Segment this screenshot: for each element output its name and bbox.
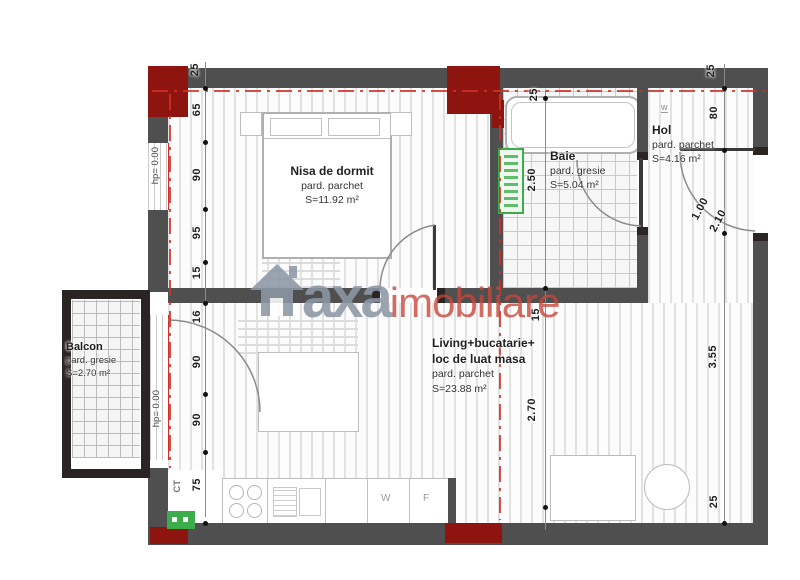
dim-label: 15: [191, 266, 203, 279]
balcony-door-level-label: hp= 0.00: [151, 390, 162, 427]
round-table: [644, 464, 690, 510]
dim-label: 65: [191, 103, 203, 116]
pillow: [328, 118, 380, 136]
hall-label: Hol pard. parchet S=4.16 m²: [652, 122, 752, 167]
column-stub: [492, 100, 504, 128]
balcony-label: Balcon pard. gresie S=2.70 m²: [66, 340, 146, 380]
room-floor: pard. gresie: [66, 355, 146, 368]
dimension-line-left: [205, 62, 206, 517]
fridge-label: F: [423, 493, 429, 504]
balcony-door-opening: [150, 315, 169, 460]
marker-text-illegible: [504, 155, 518, 207]
wall-left-a: [148, 115, 168, 143]
dim-label: 25: [705, 64, 717, 77]
column: [445, 523, 502, 543]
dim-label: 25: [528, 88, 540, 101]
dim-label: 15: [530, 308, 542, 321]
room-name: Living+bucatarie+: [432, 335, 572, 351]
wall-right-upper: [753, 88, 768, 155]
wall-interior-horizontal-b: [437, 288, 648, 303]
door-jamb: [753, 233, 768, 241]
washer-label: W: [381, 493, 390, 504]
bathroom-window-marker: [498, 148, 524, 214]
pillow: [270, 118, 322, 136]
living-label: Living+bucatarie+ loc de luat masa pard.…: [432, 335, 572, 396]
dim-label: 25: [708, 495, 720, 508]
window-level-label: hp= 0.00: [150, 147, 161, 184]
dining-table: [258, 352, 359, 432]
dim-label: 80: [708, 106, 720, 119]
entrance-door-opening: [753, 155, 768, 233]
room-floor: pard. parchet: [432, 367, 572, 381]
wall-right-lower: [753, 233, 768, 525]
room-floor: pard. gresie: [550, 164, 640, 178]
room-name-line2: loc de luat masa: [432, 351, 572, 367]
room-floor: pard. parchet: [652, 138, 752, 152]
sink-unit: [267, 479, 326, 524]
kitchen-counter: [222, 478, 450, 525]
room-name: Nisa de dormit: [252, 163, 412, 179]
wall-left-c: [148, 468, 168, 525]
room-area: S=11.92 m²: [252, 193, 412, 207]
dim-label: 2.70: [526, 398, 538, 421]
dimension-line-mid: [545, 90, 546, 530]
dim-label: 95: [191, 226, 203, 239]
door-jamb: [753, 147, 768, 155]
dim-label: 75: [191, 478, 203, 491]
bathtub-inner: [511, 102, 635, 148]
section-line-vertical-left: [169, 94, 171, 468]
door-jamb: [437, 288, 445, 303]
room-floor: pard. parchet: [252, 179, 412, 193]
room-area: S=5.04 m²: [550, 178, 640, 192]
section-line-vertical-mid: [499, 94, 501, 520]
room-name: Baie: [550, 148, 640, 164]
door-jamb: [372, 288, 380, 303]
wall-bathroom-hall-lower: [637, 227, 648, 288]
sofa: [238, 318, 358, 354]
bathroom-label: Baie pard. gresie S=5.04 m²: [550, 148, 640, 193]
boiler-label: CT: [172, 480, 183, 493]
bed-line: [264, 138, 390, 139]
dim-label: 2.50: [526, 168, 538, 191]
bedroom-label: Nisa de dormit pard. parchet S=11.92 m²: [252, 163, 412, 208]
couch: [550, 455, 636, 521]
floor-plan-canvas: W F: [0, 0, 800, 580]
balcony-walls: [62, 290, 150, 478]
column: [150, 527, 188, 544]
room-area: S=23.88 m²: [432, 382, 572, 396]
room-name: Balcon: [66, 340, 146, 355]
room-area: S=4.16 m²: [652, 152, 752, 166]
dim-label: 90: [191, 413, 203, 426]
sink-basin: [299, 488, 321, 516]
bedroom-door-leaf: [433, 225, 436, 290]
door-jamb: [637, 227, 648, 235]
gas-vent-marker: [167, 511, 195, 529]
stove-unit: [223, 479, 268, 524]
nightstand: [240, 112, 262, 136]
bed-bench: [262, 256, 340, 288]
dim-label: 25: [189, 63, 201, 76]
dim-label: 3.55: [707, 345, 719, 368]
sink-drainer: [273, 487, 297, 517]
section-line-horizontal: [152, 90, 765, 92]
bathtub: [505, 96, 641, 154]
dim-label: 16: [191, 310, 203, 323]
nightstand: [390, 112, 412, 136]
hall-window-mark: w: [661, 102, 668, 113]
counter-unit: [325, 479, 368, 524]
wall-left-b: [148, 210, 168, 292]
dim-label: 90: [191, 168, 203, 181]
wall-interior-horizontal-a: [168, 288, 380, 303]
dim-label: 90: [191, 355, 203, 368]
room-name: Hol: [652, 122, 752, 138]
room-area: S=2.70 m²: [66, 368, 146, 381]
counter-end-wall: [448, 478, 456, 524]
